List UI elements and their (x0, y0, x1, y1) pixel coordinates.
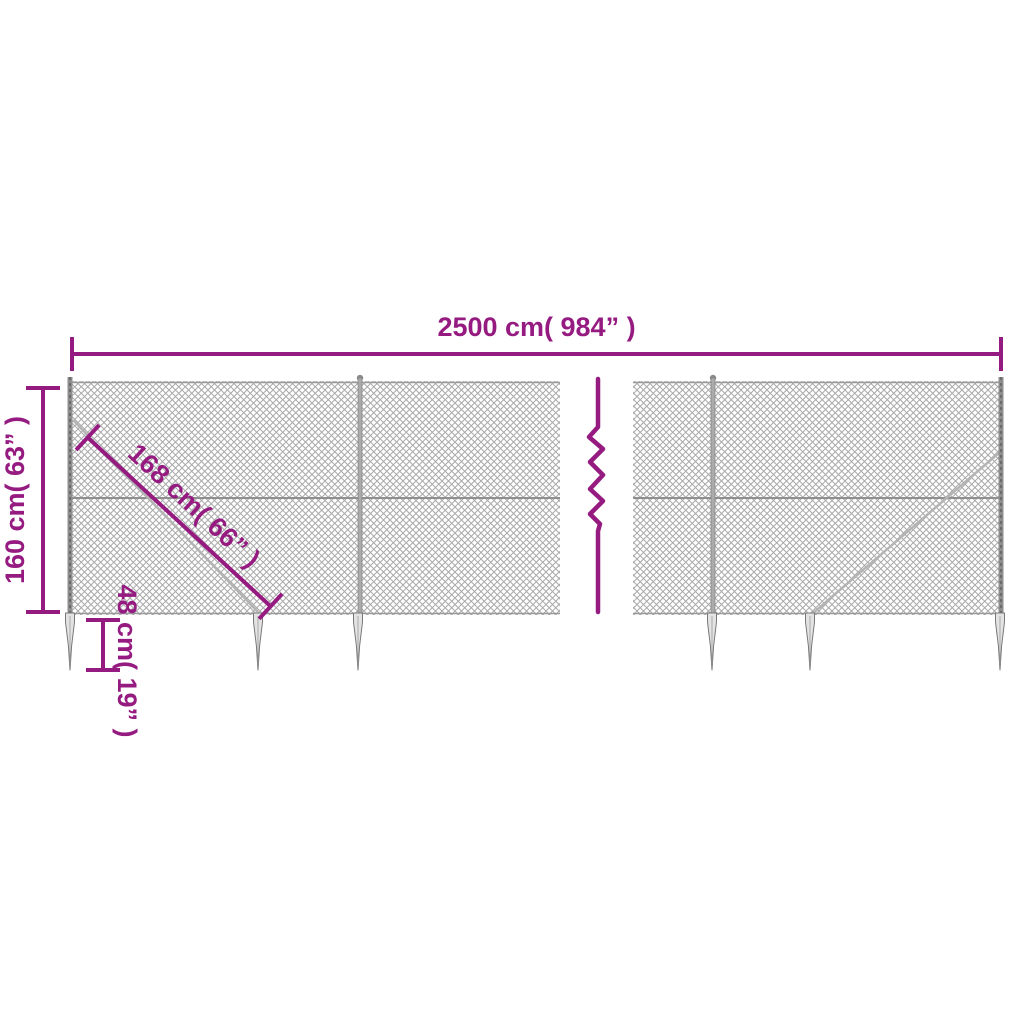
break-symbol (589, 379, 603, 612)
fence-post-mid-right (710, 375, 716, 615)
fence-post-mid-left (357, 375, 363, 615)
dimension-line (101, 618, 105, 672)
spike-depth-dimension: 48 cm( 19” ) (86, 618, 120, 672)
product-dimension-diagram: 2500 cm( 984” ) 160 cm( 63” ) 168 cm( 66… (0, 0, 1024, 1024)
width-dimension: 2500 cm( 984” ) (70, 337, 1003, 373)
dimension-line (41, 386, 45, 614)
dimension-tick (26, 610, 60, 614)
height-dimension-label: 160 cm( 63” ) (0, 416, 30, 584)
ground-spike-ridges (70, 616, 1000, 664)
fence-post-left-edge (68, 377, 73, 616)
height-dimension: 160 cm( 63” ) (26, 386, 60, 614)
width-dimension-label: 2500 cm( 984” ) (437, 312, 635, 342)
dimension-tick (999, 337, 1003, 371)
fence-illustration (0, 0, 1024, 1024)
fence-mesh-left (70, 381, 560, 615)
fence-post-right-edge (999, 377, 1004, 616)
ground-spikes (66, 613, 1005, 670)
dimension-line (70, 352, 1003, 356)
spike-depth-dimension-label: 48 cm( 19” ) (112, 584, 142, 737)
